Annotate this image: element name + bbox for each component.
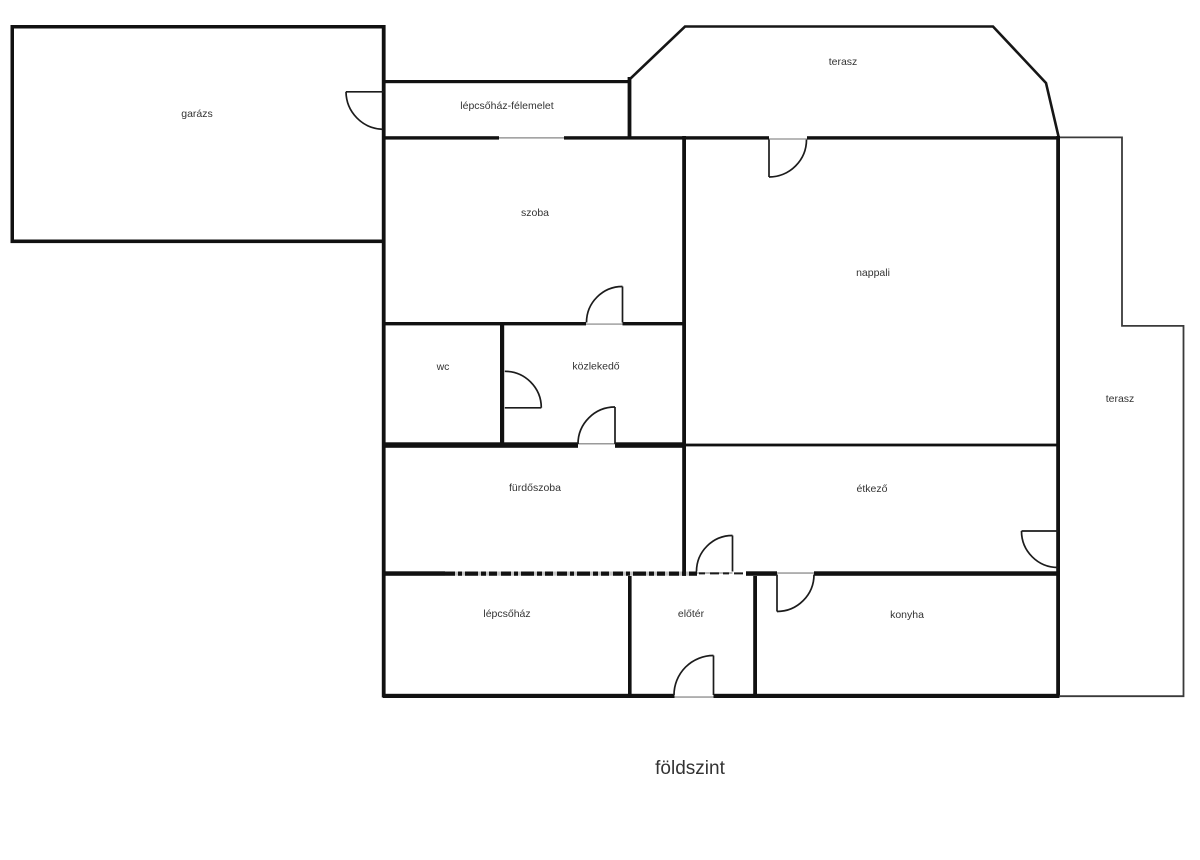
svg-text:konyha: konyha	[890, 609, 924, 621]
svg-text:lépcsőház-félemelet: lépcsőház-félemelet	[460, 100, 553, 112]
svg-text:előtér: előtér	[678, 608, 705, 620]
svg-text:wc: wc	[436, 361, 450, 373]
svg-text:étkező: étkező	[857, 483, 888, 495]
svg-text:lépcsőház: lépcsőház	[483, 608, 530, 620]
svg-text:fürdőszoba: fürdőszoba	[509, 482, 561, 494]
svg-text:terasz: terasz	[829, 56, 858, 68]
svg-text:földszint: földszint	[655, 758, 725, 779]
svg-text:nappali: nappali	[856, 267, 890, 279]
svg-text:közlekedő: közlekedő	[572, 361, 619, 373]
svg-text:szoba: szoba	[521, 207, 549, 219]
svg-text:terasz: terasz	[1106, 393, 1135, 405]
svg-text:garázs: garázs	[181, 108, 213, 120]
